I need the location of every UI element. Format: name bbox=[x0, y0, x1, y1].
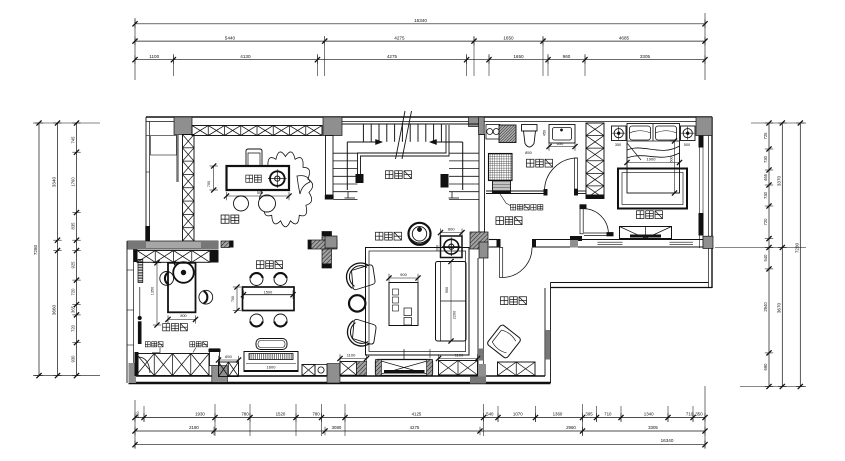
svg-text:5440: 5440 bbox=[225, 35, 236, 40]
svg-text:4685: 4685 bbox=[619, 35, 630, 40]
svg-text:4125: 4125 bbox=[412, 412, 422, 417]
svg-text:850: 850 bbox=[525, 150, 532, 155]
svg-text:4275: 4275 bbox=[394, 35, 405, 40]
svg-text:16340: 16340 bbox=[661, 438, 674, 443]
svg-text:3660: 3660 bbox=[52, 304, 57, 315]
svg-text:1650: 1650 bbox=[503, 35, 514, 40]
svg-text:1340: 1340 bbox=[644, 412, 654, 417]
svg-text:1900: 1900 bbox=[647, 157, 657, 162]
svg-text:1350: 1350 bbox=[151, 287, 155, 295]
svg-text:1600: 1600 bbox=[267, 365, 277, 370]
svg-text:4275: 4275 bbox=[410, 425, 420, 430]
svg-text:1520: 1520 bbox=[276, 412, 286, 417]
svg-text:925: 925 bbox=[71, 261, 76, 269]
svg-text:1100: 1100 bbox=[347, 352, 356, 357]
svg-text:450: 450 bbox=[543, 130, 547, 136]
svg-text:1100: 1100 bbox=[149, 54, 159, 59]
svg-text:7280: 7280 bbox=[33, 244, 38, 255]
svg-text:1760: 1760 bbox=[71, 177, 76, 187]
svg-text:900: 900 bbox=[445, 287, 449, 293]
svg-text:395: 395 bbox=[585, 412, 593, 417]
svg-text:1070: 1070 bbox=[513, 412, 523, 417]
svg-text:930: 930 bbox=[71, 355, 76, 363]
svg-text:500: 500 bbox=[684, 143, 690, 147]
svg-text:540: 540 bbox=[763, 254, 768, 262]
svg-text:690: 690 bbox=[763, 363, 768, 371]
svg-text:780: 780 bbox=[312, 412, 320, 417]
svg-text:500: 500 bbox=[257, 191, 263, 195]
svg-text:1930: 1930 bbox=[195, 412, 205, 417]
svg-text:465: 465 bbox=[763, 173, 768, 181]
svg-text:900: 900 bbox=[400, 272, 407, 277]
svg-text:600: 600 bbox=[448, 227, 455, 232]
svg-text:650: 650 bbox=[557, 141, 564, 146]
svg-text:710: 710 bbox=[604, 412, 612, 417]
svg-text:3305: 3305 bbox=[640, 54, 651, 59]
svg-text:3370: 3370 bbox=[776, 175, 781, 186]
svg-text:4130: 4130 bbox=[240, 54, 251, 59]
svg-text:700: 700 bbox=[231, 296, 235, 302]
svg-text:780: 780 bbox=[241, 412, 249, 417]
svg-text:1650: 1650 bbox=[513, 54, 524, 59]
svg-text:2180: 2180 bbox=[189, 425, 199, 430]
svg-text:1500: 1500 bbox=[264, 290, 272, 294]
svg-text:540: 540 bbox=[486, 412, 494, 417]
svg-text:4275: 4275 bbox=[387, 54, 398, 59]
svg-text:2940: 2940 bbox=[763, 302, 768, 312]
svg-text:835: 835 bbox=[71, 222, 76, 230]
svg-text:650: 650 bbox=[225, 354, 232, 359]
svg-text:1100: 1100 bbox=[455, 352, 464, 357]
svg-text:730: 730 bbox=[763, 155, 768, 163]
svg-text:3340: 3340 bbox=[52, 176, 57, 187]
svg-text:960: 960 bbox=[563, 54, 571, 59]
svg-text:725: 725 bbox=[763, 132, 768, 140]
svg-text:720: 720 bbox=[71, 324, 76, 332]
svg-text:260: 260 bbox=[135, 411, 140, 418]
svg-text:1360: 1360 bbox=[553, 412, 563, 417]
svg-text:3080: 3080 bbox=[332, 425, 342, 430]
svg-text:710: 710 bbox=[686, 412, 694, 417]
svg-text:3670: 3670 bbox=[776, 302, 781, 313]
svg-text:2200: 2200 bbox=[453, 311, 457, 319]
svg-text:350: 350 bbox=[695, 412, 703, 417]
svg-text:16340: 16340 bbox=[414, 18, 427, 23]
svg-text:600: 600 bbox=[670, 157, 674, 163]
svg-text:720: 720 bbox=[763, 218, 768, 226]
svg-text:730: 730 bbox=[763, 191, 768, 199]
svg-text:2960: 2960 bbox=[566, 425, 576, 430]
svg-text:720: 720 bbox=[71, 288, 76, 296]
svg-text:700: 700 bbox=[207, 181, 211, 187]
svg-text:745: 745 bbox=[71, 136, 76, 144]
svg-text:3305: 3305 bbox=[648, 425, 658, 430]
svg-text:365: 365 bbox=[71, 305, 76, 313]
svg-text:800: 800 bbox=[180, 314, 186, 318]
svg-text:350: 350 bbox=[615, 143, 621, 147]
